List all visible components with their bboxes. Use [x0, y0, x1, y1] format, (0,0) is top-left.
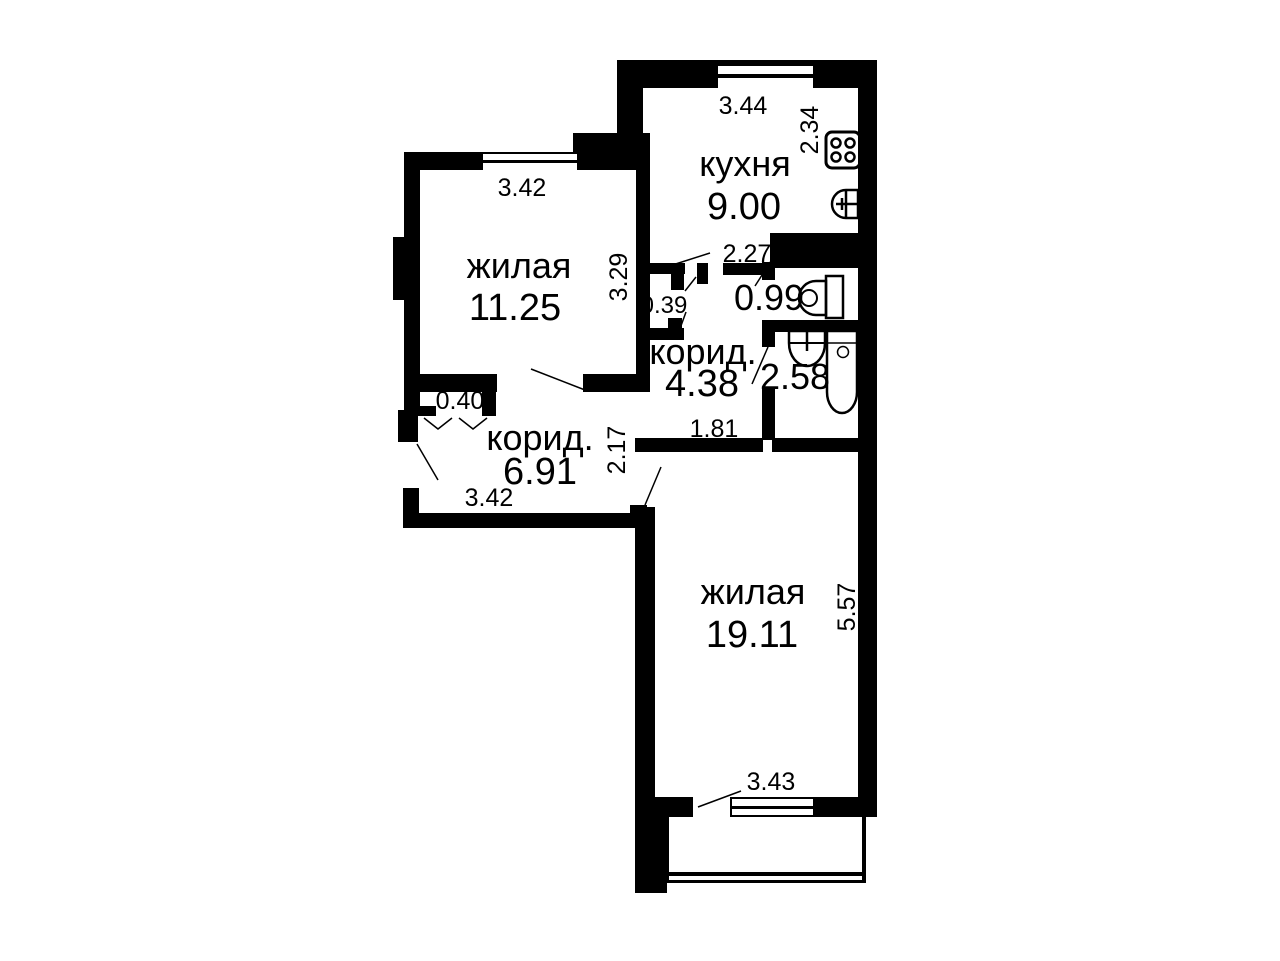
wall-living1-left	[404, 152, 420, 410]
room-area-corridor2: 6.91	[503, 451, 577, 493]
room-area-living1: 11.25	[469, 287, 561, 329]
wall-bath-left-stub	[762, 332, 775, 347]
wall-living1-bottom-right	[583, 374, 650, 392]
room-label-living1: жилая	[467, 245, 572, 286]
room-area-bathroom: 2.58	[760, 356, 830, 397]
balcony-bottom-line2	[665, 880, 866, 883]
window-living2	[732, 799, 813, 815]
dim-balcony-door: 3.43	[747, 768, 796, 796]
dim-living2-depth: 5.57	[833, 583, 861, 632]
wall-living2-bottom-right	[813, 797, 877, 817]
dim-living1-depth: 3.29	[605, 253, 633, 302]
window-kitchen	[718, 66, 813, 88]
wall-niche-right-stub	[671, 263, 684, 290]
wall-kitchen-bottom-right	[770, 233, 858, 268]
dim-kitchen-depth: 2.34	[796, 106, 824, 155]
room-area-living2: 19.11	[706, 614, 798, 656]
floor-plan: кухня 9.00 3.44 2.34 жилая 11.25 3.42 3.…	[0, 0, 1280, 961]
dim-kitchen-width: 3.44	[719, 92, 768, 120]
balcony-bottom-line1	[665, 872, 866, 876]
wall-niche040-stub	[416, 406, 436, 416]
wall-left-lower	[398, 410, 418, 442]
dim-niche: 0.39	[641, 292, 688, 319]
wall-cross-right	[772, 438, 858, 452]
wall-living2-left	[635, 507, 655, 799]
wall-corridor2-bottom	[403, 513, 647, 528]
room-area-corridor1: 4.38	[665, 363, 739, 405]
room-label-kitchen: кухня	[699, 143, 791, 184]
dim-corridor2-width: 3.42	[465, 484, 514, 512]
room-label-living2: жилая	[701, 571, 806, 612]
dim-corridor1-width: 1.81	[690, 415, 739, 443]
room-area-kitchen: 9.00	[707, 186, 781, 228]
window-living2-bar	[732, 806, 813, 809]
floor-plan-page: кухня 9.00 3.44 2.34 жилая 11.25 3.42 3.…	[0, 0, 1280, 961]
dim-kitchen-door: 2.27	[723, 240, 772, 268]
room-area-wc: 0.99	[734, 277, 804, 318]
wall-left-pilaster	[393, 237, 406, 300]
window-kitchen-bar	[718, 74, 813, 78]
wall-door-jamb	[697, 263, 708, 284]
dim-living1-width: 3.42	[498, 174, 547, 202]
wall-right	[858, 60, 877, 817]
window-living1	[483, 154, 577, 170]
dim-entry-niche: 0.40	[436, 387, 485, 415]
window-living1-bar	[483, 160, 577, 163]
wall-living1-right	[636, 170, 650, 392]
dim-corridor2-depth: 2.17	[603, 426, 631, 475]
